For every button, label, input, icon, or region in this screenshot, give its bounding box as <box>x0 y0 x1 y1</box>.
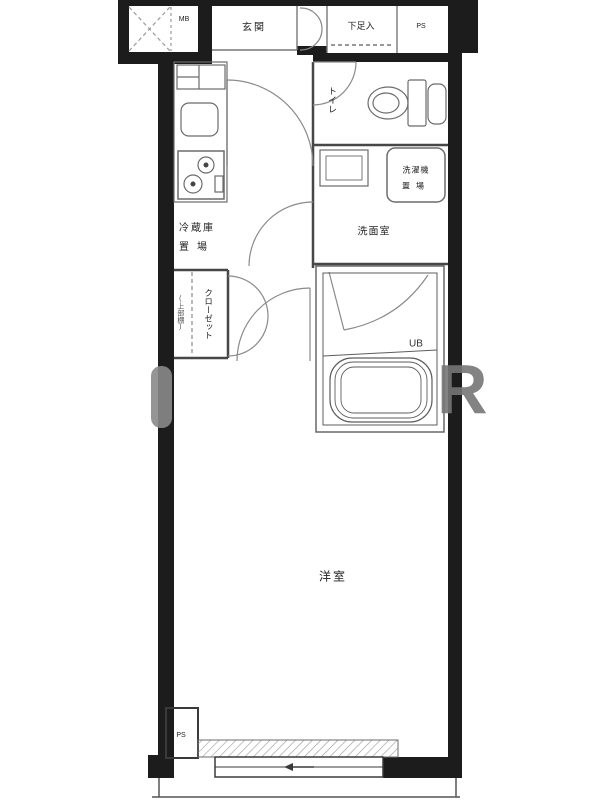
wall-bottom-right-block <box>383 757 452 778</box>
bathtub-outer <box>330 358 432 422</box>
label-pipe-space-bottom: PS <box>176 732 185 740</box>
interior-partitions <box>174 62 448 358</box>
label-fridge-line2: 置場 <box>179 242 215 253</box>
kitchen-sink <box>181 103 218 136</box>
balcony-outline <box>152 778 460 797</box>
label-western-room: 洋室 <box>319 570 347 583</box>
shaft-cross-marks <box>129 7 171 51</box>
hall-door-arc <box>227 80 313 166</box>
label-washer-line2: 置場 <box>402 183 430 192</box>
wall-genkan-divider <box>198 0 212 62</box>
label-shoe-cabinet: 下足入 <box>347 22 374 32</box>
stove-grill-box <box>215 176 223 192</box>
window-sill-hatch <box>198 740 398 757</box>
label-fridge-line1: 冷蔵庫 <box>179 223 215 234</box>
label-washer-place: 洗濯機 置場 <box>402 167 430 192</box>
wall-top <box>118 0 478 6</box>
bathtub-mid <box>335 362 427 418</box>
tub-platform-line <box>323 350 437 356</box>
label-closet: クローゼット <box>203 289 212 340</box>
washbasin-inner <box>326 156 362 180</box>
toilet-bowl-inner <box>373 93 399 113</box>
stove-burner-2-center <box>191 182 196 187</box>
wall-top-right-block <box>448 0 478 53</box>
washbasin <box>320 150 368 186</box>
kitchen-unit <box>174 62 227 202</box>
label-entrance: 玄関 <box>242 23 266 34</box>
toilet-tank <box>408 80 426 126</box>
sliding-window <box>215 757 383 777</box>
entrance-double-door-arc-top <box>300 8 322 29</box>
closet-door-arc-top <box>228 276 268 316</box>
label-washer-line1: 洗濯機 <box>402 167 430 176</box>
bathtub-inner <box>341 367 421 413</box>
floorplan-canvas: MB 玄関 下足入 PS トイレ 冷蔵庫 置場 洗濯機 置場 洗面室 クローゼッ… <box>0 0 600 800</box>
label-fridge-place: 冷蔵庫 置場 <box>179 223 215 253</box>
bath-door-arc <box>344 275 428 330</box>
washroom-door-arc <box>249 202 313 266</box>
label-toilet: トイレ <box>326 87 336 114</box>
stove-burner-1-center <box>204 163 209 168</box>
toilet-fixture <box>368 80 446 126</box>
unit-bath <box>316 266 444 432</box>
label-washroom: 洗面室 <box>358 227 391 238</box>
toilet-bowl <box>368 87 408 119</box>
floorplan-drawing <box>0 0 600 800</box>
bath-door-leaf <box>329 272 344 330</box>
label-pipe-space-top: PS <box>416 23 425 31</box>
label-meter-box: MB <box>179 16 190 24</box>
wall-toilet-top <box>313 53 448 62</box>
label-unit-bath: UB <box>409 339 423 350</box>
toilet-side-cabinet <box>428 84 446 124</box>
room-door-arc <box>237 288 310 361</box>
label-closet-shelf-note: (上部棚) <box>176 296 184 331</box>
watermark-left-fragment <box>151 366 172 428</box>
watermark-letter: R <box>437 354 488 424</box>
ub-wall-outer <box>316 266 444 432</box>
